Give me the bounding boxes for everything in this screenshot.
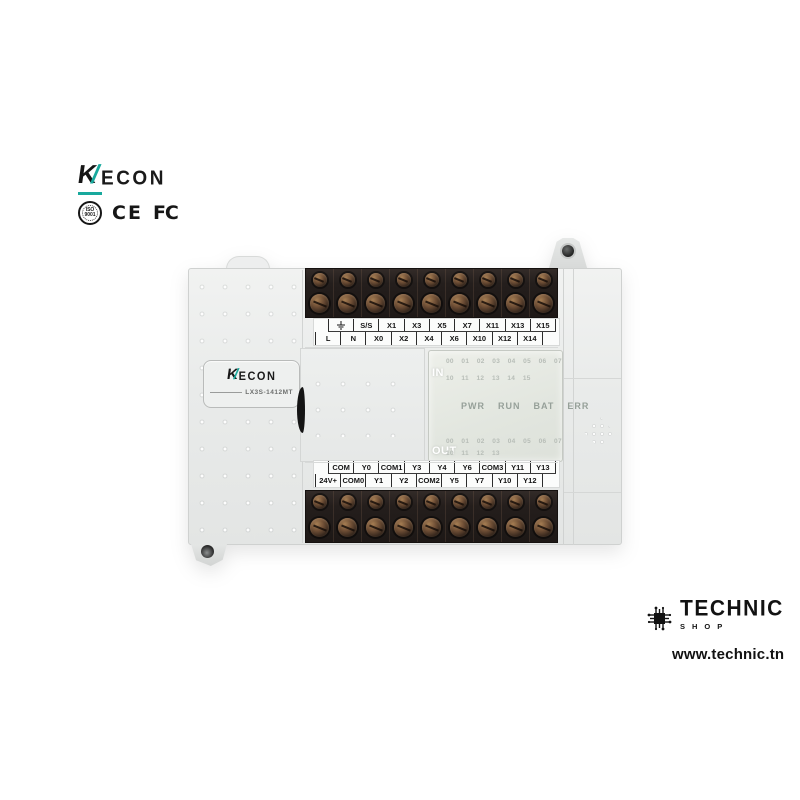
terminal-label: Y7 bbox=[466, 474, 491, 487]
terminal-label: X10 bbox=[466, 332, 491, 345]
terminal-screw bbox=[502, 269, 530, 290]
terminal-screw bbox=[418, 513, 446, 542]
out-led-numbers-row1: 00 01 02 03 04 05 06 07 bbox=[446, 438, 562, 445]
terminal-screw bbox=[530, 269, 557, 290]
terminal-screw bbox=[362, 269, 390, 290]
terminal-screw bbox=[418, 290, 446, 317]
seller-subtitle: SHOP bbox=[680, 622, 784, 631]
body-seam bbox=[305, 462, 558, 463]
terminal-label: X7 bbox=[454, 319, 479, 331]
terminal-screw-row bbox=[306, 491, 557, 513]
center-panel-dots bbox=[315, 381, 414, 437]
terminal-screw bbox=[334, 269, 362, 290]
expansion-slot bbox=[297, 387, 305, 433]
pwr-led-label: PWR bbox=[461, 401, 485, 411]
terminal-screw bbox=[530, 290, 557, 317]
terminal-screw bbox=[474, 290, 502, 317]
fcc-mark: FC bbox=[153, 202, 178, 224]
terminal-screw bbox=[446, 269, 474, 290]
bat-led-label: BAT bbox=[534, 401, 555, 411]
terminal-label: Y12 bbox=[517, 474, 543, 487]
terminal-label: X11 bbox=[479, 319, 504, 331]
terminal-screw-row bbox=[306, 290, 557, 317]
ce-mark: CE bbox=[112, 202, 143, 224]
mounting-ear-top bbox=[546, 238, 590, 269]
terminal-label: X5 bbox=[429, 319, 454, 331]
output-label-strip: COM Y0 COM1 Y3 Y4 Y6 COM3 Y11 Y13 24V+ C… bbox=[313, 460, 560, 488]
seller-block: TECHNIC SHOP www.technic.tn bbox=[644, 598, 794, 663]
terminal-label: Y10 bbox=[492, 474, 517, 487]
terminal-screw bbox=[334, 491, 362, 513]
in-label: IN bbox=[432, 367, 444, 379]
terminal-screw bbox=[418, 491, 446, 513]
terminal-screw bbox=[390, 269, 418, 290]
terminal-label: Y5 bbox=[441, 474, 466, 487]
terminal-screw bbox=[390, 290, 418, 317]
terminal-screw bbox=[306, 290, 334, 317]
circuit-chip-icon bbox=[644, 600, 674, 638]
terminal-screw bbox=[474, 513, 502, 542]
plc-device: K/ECON LX3S-1412MT S/S X1 X3 X5 X7 X11 X… bbox=[188, 238, 622, 568]
terminal-screw-row bbox=[306, 513, 557, 542]
terminal-label: N bbox=[340, 332, 365, 345]
terminal-label: X15 bbox=[530, 319, 556, 331]
in-led-numbers-row1: 00 01 02 03 04 05 06 07 bbox=[446, 358, 562, 365]
terminal-screw bbox=[446, 290, 474, 317]
certification-marks: ISO 9001 CE FC bbox=[78, 201, 178, 225]
panel-seam bbox=[573, 268, 574, 545]
badge-model-line bbox=[210, 392, 242, 393]
terminal-label: COM2 bbox=[416, 474, 441, 487]
badge-logo-text: ECON bbox=[239, 371, 277, 384]
wecon-logo: K/ECON bbox=[78, 164, 178, 190]
badge-wecon-logo: K/ECON bbox=[210, 367, 293, 383]
input-label-strip: S/S X1 X3 X5 X7 X11 X13 X15 L N X0 X2 X4… bbox=[313, 318, 560, 346]
iso-9001-badge: ISO 9001 bbox=[78, 201, 102, 225]
terminal-screw bbox=[502, 491, 530, 513]
panel-seam bbox=[564, 492, 621, 493]
output-labels-row2: 24V+ COM0 Y1 Y2 COM2 Y5 Y7 Y10 Y12 bbox=[315, 474, 543, 487]
terminal-screw bbox=[362, 513, 390, 542]
wecon-logo-text: ECON bbox=[101, 167, 166, 191]
terminal-label: X12 bbox=[492, 332, 517, 345]
terminal-screw bbox=[362, 290, 390, 317]
center-panel bbox=[300, 348, 425, 462]
input-terminal-block bbox=[305, 268, 558, 318]
terminal-label: 24V+ bbox=[315, 474, 340, 487]
terminal-screw bbox=[390, 491, 418, 513]
badge-model-row: LX3S-1412MT bbox=[210, 389, 293, 396]
input-labels-row1: S/S X1 X3 X5 X7 X11 X13 X15 bbox=[328, 319, 556, 332]
terminal-screw bbox=[334, 290, 362, 317]
terminal-label: X3 bbox=[404, 319, 429, 331]
output-terminal-block bbox=[305, 490, 558, 543]
mounting-hole-bottom bbox=[201, 545, 214, 558]
terminal-screw-row bbox=[306, 269, 557, 290]
earth-ground-icon bbox=[328, 319, 353, 331]
terminal-label: X13 bbox=[505, 319, 530, 331]
terminal-screw bbox=[306, 491, 334, 513]
terminal-label: Y2 bbox=[391, 474, 416, 487]
terminal-screw bbox=[502, 513, 530, 542]
terminal-label: X2 bbox=[391, 332, 416, 345]
iso-number: 9001 bbox=[84, 213, 95, 218]
terminal-label: X14 bbox=[517, 332, 543, 345]
terminal-label: X4 bbox=[416, 332, 441, 345]
terminal-screw bbox=[530, 491, 557, 513]
panel-seam bbox=[564, 378, 621, 379]
terminal-label: COM0 bbox=[340, 474, 365, 487]
terminal-label: L bbox=[315, 332, 340, 345]
body-seam bbox=[305, 347, 558, 348]
mounting-hole-top bbox=[562, 245, 574, 257]
terminal-label: X1 bbox=[378, 319, 403, 331]
terminal-label: X6 bbox=[441, 332, 466, 345]
terminal-screw bbox=[418, 269, 446, 290]
terminal-label: S/S bbox=[353, 319, 378, 331]
out-led-numbers-row2: 10 11 12 13 bbox=[446, 450, 500, 457]
terminal-screw bbox=[362, 491, 390, 513]
terminal-screw bbox=[446, 491, 474, 513]
right-vent-dots bbox=[584, 416, 614, 448]
terminal-screw bbox=[334, 513, 362, 542]
terminal-screw bbox=[446, 513, 474, 542]
seller-name: TECHNIC bbox=[680, 597, 784, 619]
terminal-screw bbox=[390, 513, 418, 542]
terminal-screw bbox=[306, 513, 334, 542]
seller-url: www.technic.tn bbox=[672, 646, 794, 663]
terminal-screw bbox=[474, 269, 502, 290]
terminal-label: Y1 bbox=[365, 474, 390, 487]
model-badge: K/ECON LX3S-1412MT bbox=[203, 360, 300, 408]
run-led-label: RUN bbox=[498, 401, 521, 411]
in-led-numbers-row2: 10 11 12 13 14 15 bbox=[446, 375, 531, 382]
brand-block: K/ECON ISO 9001 CE FC bbox=[78, 164, 178, 225]
terminal-screw bbox=[474, 491, 502, 513]
terminal-screw bbox=[530, 513, 557, 542]
terminal-screw bbox=[306, 269, 334, 290]
terminal-label: X0 bbox=[365, 332, 390, 345]
led-status-window: 00 01 02 03 04 05 06 07 IN 10 11 12 13 1… bbox=[428, 350, 563, 462]
terminal-screw bbox=[502, 290, 530, 317]
input-labels-row2: L N X0 X2 X4 X6 X10 X12 X14 bbox=[315, 332, 543, 345]
wecon-logo-underline bbox=[78, 192, 102, 195]
mounting-hole-bottom-wrap bbox=[191, 544, 227, 566]
model-number: LX3S-1412MT bbox=[245, 389, 293, 396]
right-end-panel bbox=[563, 268, 621, 545]
